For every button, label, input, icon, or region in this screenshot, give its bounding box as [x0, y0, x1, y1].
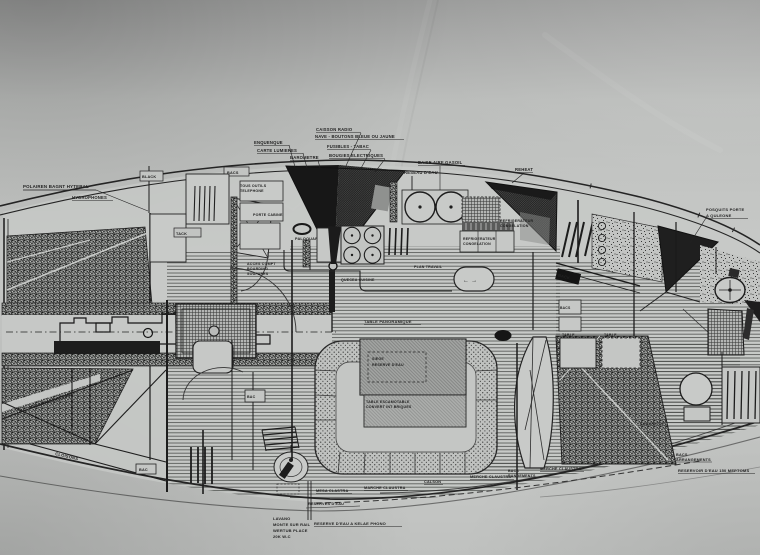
svg-text:← →: ← →	[463, 278, 477, 284]
svg-text:MERCHE CLAUSTRA: MERCHE CLAUSTRA	[540, 467, 581, 471]
svg-text:ARRANGEMENTS: ARRANGEMENTS	[676, 458, 711, 462]
svg-text:BAC: BAC	[139, 468, 148, 472]
svg-text:MARCHE CLAUSTRA: MARCHE CLAUSTRA	[364, 486, 406, 490]
svg-text:20K W-C: 20K W-C	[273, 534, 291, 539]
svg-text:SOUPAPES: SOUPAPES	[247, 272, 269, 276]
svg-text:BACS: BACS	[508, 469, 519, 473]
svg-text:REFRIGERATEUR: REFRIGERATEUR	[463, 237, 496, 241]
svg-text:CONGELATION: CONGELATION	[500, 224, 529, 228]
svg-text:TELEPHONE: TELEPHONE	[240, 189, 264, 193]
svg-text:A QULEONE: A QULEONE	[706, 213, 732, 218]
svg-text:RANGEMENTS: RANGEMENTS	[508, 474, 536, 478]
svg-text:REHEAT: REHEAT	[515, 167, 533, 172]
svg-text:RESERVES D'EAU: RESERVES D'EAU	[308, 502, 344, 506]
svg-text:HYDROPHONES: HYDROPHONES	[72, 195, 107, 200]
svg-text:BACS: BACS	[560, 306, 571, 310]
svg-text:LAVANO: LAVANO	[273, 516, 291, 521]
svg-text:ACCES COMPT: ACCES COMPT	[247, 262, 276, 266]
svg-text:BLACK: BLACK	[142, 175, 156, 179]
svg-text:RESERVE D'EAU A KELAE PHONO: RESERVE D'EAU A KELAE PHONO	[314, 521, 386, 526]
svg-text:BAISE AIRE GASOIL: BAISE AIRE GASOIL	[418, 160, 463, 165]
svg-text:RESERVOIR D'EAU 150 MEPTOMS: RESERVOIR D'EAU 150 MEPTOMS	[678, 468, 749, 473]
svg-text:NAVE - BOUTONS BLEUE OU JAUNE: NAVE - BOUTONS BLEUE OU JAUNE	[315, 134, 395, 139]
svg-text:BACS: BACS	[676, 453, 688, 457]
svg-text:TABLE PANORAMIQUE: TABLE PANORAMIQUE	[364, 319, 412, 324]
svg-text:PLAN TRAVAIL: PLAN TRAVAIL	[414, 265, 443, 269]
svg-text:BOUGIES ELECTRIQUES: BOUGIES ELECTRIQUES	[329, 153, 383, 158]
svg-text:CAISSON RADIO: CAISSON RADIO	[316, 127, 353, 132]
svg-text:TOUS OUTILS: TOUS OUTILS	[240, 184, 267, 188]
svg-text:TABLE ESCAMOTABLE: TABLE ESCAMOTABLE	[366, 400, 410, 404]
svg-text:TABLE: TABLE	[604, 333, 617, 337]
svg-text:REFRIGERATEUR: REFRIGERATEUR	[500, 219, 533, 223]
svg-text:ENQUENQUE: ENQUENQUE	[254, 140, 283, 145]
svg-text:WERTUB PLACE: WERTUB PLACE	[273, 528, 308, 533]
svg-text:SIEGE: SIEGE	[372, 357, 384, 361]
svg-text:RESEAU D'EAU: RESEAU D'EAU	[404, 170, 438, 175]
svg-text:CONGELATION: CONGELATION	[463, 242, 491, 246]
svg-text:POSQUITS PORTE: POSQUITS PORTE	[706, 207, 744, 212]
svg-text:MESA CLASTRA: MESA CLASTRA	[316, 489, 348, 493]
svg-text:FUSIBLES - TABAC: FUSIBLES - TABAC	[327, 144, 369, 149]
svg-text:PORTE CABINE: PORTE CABINE	[253, 213, 283, 217]
svg-text:CONVERT INT BRIQUES: CONVERT INT BRIQUES	[366, 405, 412, 409]
svg-text:QUECEA CUISINE: QUECEA CUISINE	[341, 278, 375, 282]
svg-text:BAC: BAC	[247, 395, 256, 399]
svg-text:TABLE: TABLE	[562, 333, 575, 337]
svg-text:TACK: TACK	[176, 232, 187, 236]
svg-text:COUCHETTE: COUCHETTE	[640, 422, 665, 426]
svg-text:MERCHE CLAUSTRA: MERCHE CLAUSTRA	[470, 475, 511, 479]
svg-text:MONTE SUR RAIL: MONTE SUR RAIL	[273, 522, 311, 527]
svg-text:RESERVE D'EAU: RESERVE D'EAU	[372, 363, 404, 367]
svg-text:CALSON: CALSON	[424, 480, 441, 484]
svg-text:POLAIREN BAGNT HYTERAL: POLAIREN BAGNT HYTERAL	[23, 184, 89, 189]
